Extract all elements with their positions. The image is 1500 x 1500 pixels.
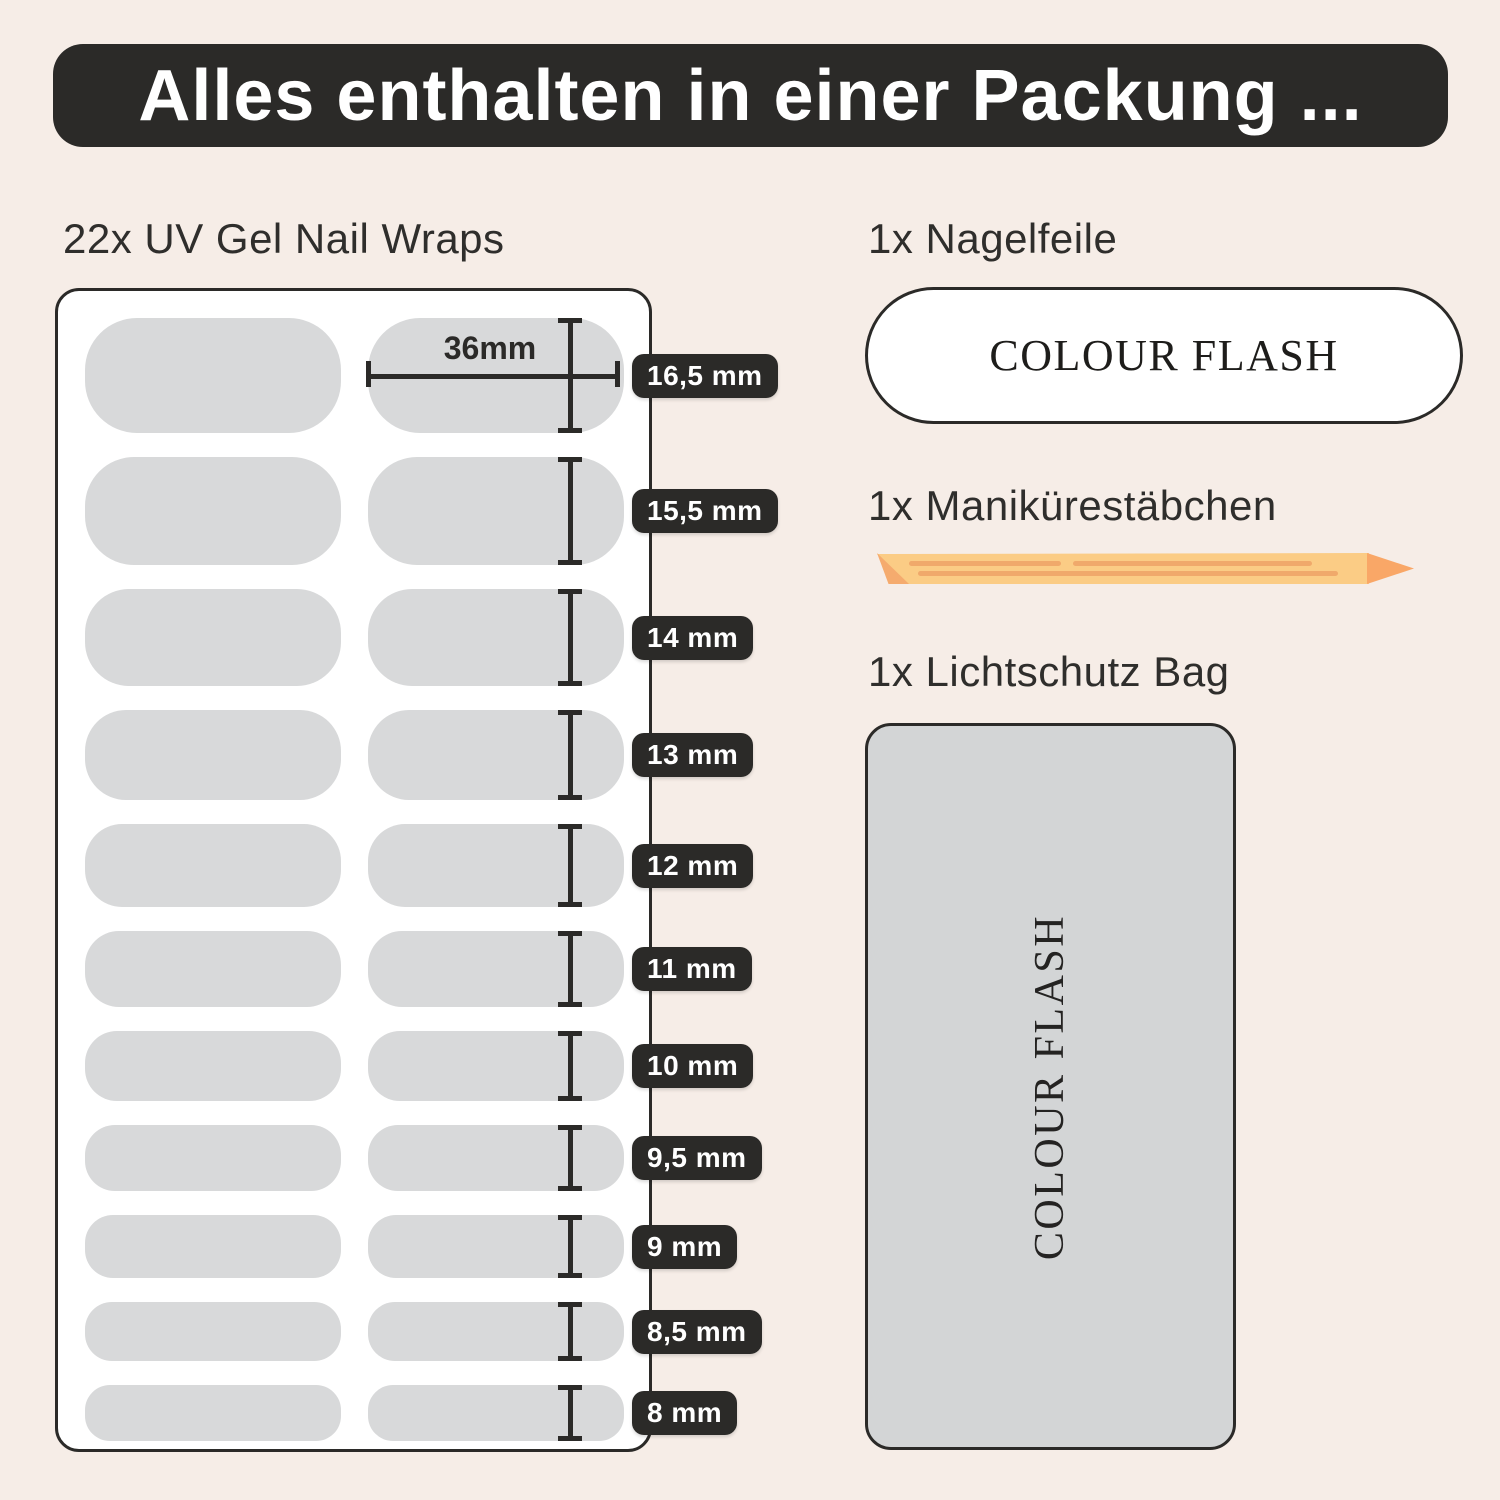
nail-wrap-left bbox=[85, 457, 341, 565]
nail-wrap-left bbox=[85, 1125, 341, 1191]
nail-wrap-rows: 16,5 mm36mm15,5 mm14 mm13 mm12 mm11 mm10… bbox=[0, 0, 1500, 1500]
size-label: 9 mm bbox=[632, 1225, 737, 1269]
height-measure-line bbox=[568, 931, 573, 1007]
height-measure-cap-top bbox=[558, 318, 582, 323]
height-measure-line bbox=[568, 589, 573, 686]
width-measure-label: 36mm bbox=[400, 330, 580, 367]
height-measure-cap-top bbox=[558, 1302, 582, 1307]
nail-wrap-row: 9,5 mm bbox=[0, 1125, 1500, 1191]
height-measure-line bbox=[568, 824, 573, 907]
height-measure-line bbox=[568, 1125, 573, 1191]
height-measure-cap-bot bbox=[558, 1096, 582, 1101]
nail-wrap-right bbox=[368, 824, 624, 907]
nail-wrap-row: 15,5 mm bbox=[0, 457, 1500, 565]
nail-wrap-left bbox=[85, 931, 341, 1007]
size-label: 16,5 mm bbox=[632, 354, 778, 398]
nail-wrap-right bbox=[368, 1215, 624, 1278]
height-measure-cap-top bbox=[558, 589, 582, 594]
nail-wrap-left bbox=[85, 1302, 341, 1361]
nail-wrap-right bbox=[368, 589, 624, 686]
size-label: 11 mm bbox=[632, 947, 752, 991]
nail-wrap-row: 13 mm bbox=[0, 710, 1500, 800]
size-label: 9,5 mm bbox=[632, 1136, 762, 1180]
height-measure-line bbox=[568, 1215, 573, 1278]
nail-wrap-row: 11 mm bbox=[0, 931, 1500, 1007]
nail-wrap-row: 8,5 mm bbox=[0, 1302, 1500, 1361]
nail-wrap-left bbox=[85, 824, 341, 907]
height-measure-cap-top bbox=[558, 457, 582, 462]
height-measure-line bbox=[568, 710, 573, 800]
height-measure-cap-top bbox=[558, 931, 582, 936]
height-measure-cap-top bbox=[558, 1385, 582, 1390]
nail-wrap-right bbox=[368, 710, 624, 800]
height-measure-cap-top bbox=[558, 1215, 582, 1220]
height-measure-cap-top bbox=[558, 824, 582, 829]
size-label: 8,5 mm bbox=[632, 1310, 762, 1354]
height-measure-line bbox=[568, 1031, 573, 1101]
nail-wrap-row: 16,5 mm36mm bbox=[0, 318, 1500, 433]
nail-wrap-left bbox=[85, 318, 341, 433]
nail-wrap-row: 10 mm bbox=[0, 1031, 1500, 1101]
height-measure-cap-top bbox=[558, 1125, 582, 1130]
height-measure-cap-bot bbox=[558, 902, 582, 907]
height-measure-cap-bot bbox=[558, 1186, 582, 1191]
width-measure-cap-right bbox=[615, 361, 620, 387]
width-measure-line bbox=[366, 374, 620, 379]
size-label: 12 mm bbox=[632, 844, 753, 888]
nail-wrap-left bbox=[85, 589, 341, 686]
nail-wrap-left bbox=[85, 1031, 341, 1101]
nail-wrap-left bbox=[85, 1385, 341, 1441]
height-measure-line bbox=[568, 1385, 573, 1441]
size-label: 10 mm bbox=[632, 1044, 753, 1088]
height-measure-cap-bot bbox=[558, 1436, 582, 1441]
height-measure-cap-bot bbox=[558, 560, 582, 565]
width-measure-cap-left bbox=[366, 361, 371, 387]
nail-wrap-left bbox=[85, 1215, 341, 1278]
size-label: 15,5 mm bbox=[632, 489, 778, 533]
height-measure-cap-bot bbox=[558, 1356, 582, 1361]
height-measure-cap-bot bbox=[558, 1002, 582, 1007]
height-measure-cap-bot bbox=[558, 428, 582, 433]
height-measure-cap-top bbox=[558, 710, 582, 715]
nail-wrap-right bbox=[368, 1031, 624, 1101]
height-measure-cap-bot bbox=[558, 1273, 582, 1278]
nail-wrap-right bbox=[368, 1385, 624, 1441]
height-measure-line bbox=[568, 1302, 573, 1361]
nail-wrap-right bbox=[368, 457, 624, 565]
nail-wrap-right bbox=[368, 1302, 624, 1361]
nail-wrap-row: 12 mm bbox=[0, 824, 1500, 907]
height-measure-cap-top bbox=[558, 1031, 582, 1036]
height-measure-cap-bot bbox=[558, 681, 582, 686]
nail-wrap-row: 8 mm bbox=[0, 1385, 1500, 1441]
height-measure-line bbox=[568, 457, 573, 565]
nail-wrap-right bbox=[368, 1125, 624, 1191]
nail-wrap-row: 14 mm bbox=[0, 589, 1500, 686]
nail-wrap-left bbox=[85, 710, 341, 800]
infographic-root: Alles enthalten in einer Packung ... 22x… bbox=[0, 0, 1500, 1500]
nail-wrap-row: 9 mm bbox=[0, 1215, 1500, 1278]
size-label: 14 mm bbox=[632, 616, 753, 660]
size-label: 8 mm bbox=[632, 1391, 737, 1435]
nail-wrap-right bbox=[368, 931, 624, 1007]
height-measure-cap-bot bbox=[558, 795, 582, 800]
size-label: 13 mm bbox=[632, 733, 753, 777]
